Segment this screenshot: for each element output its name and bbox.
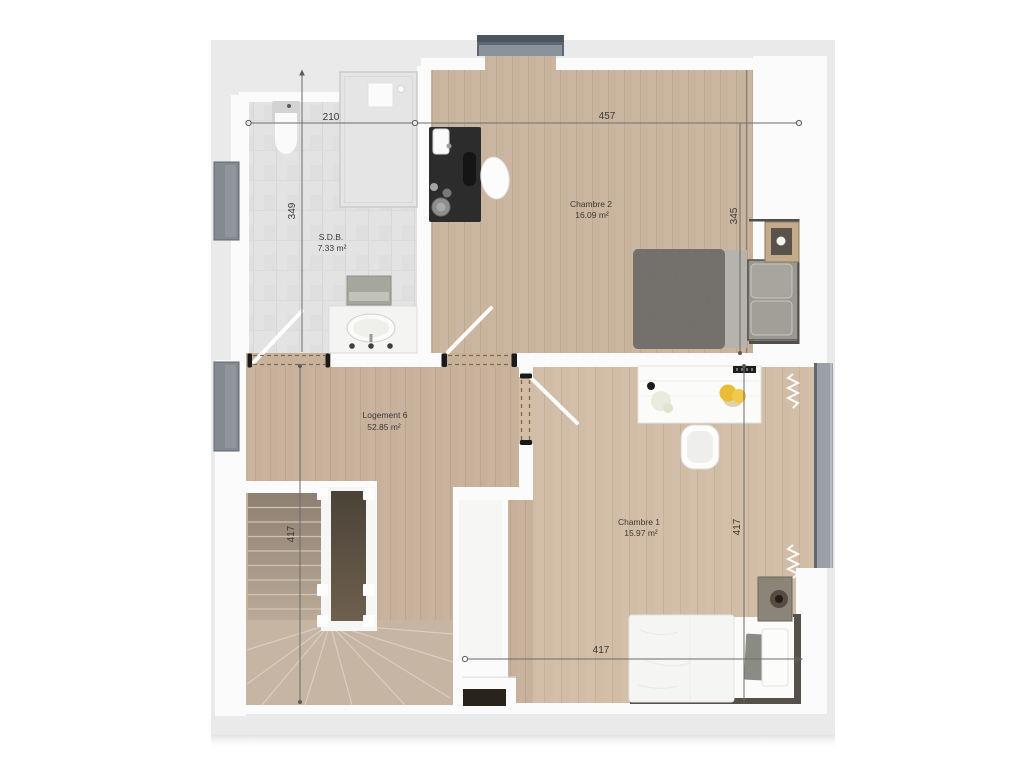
svg-text:52.85 m²: 52.85 m² <box>367 422 401 432</box>
svg-text:457: 457 <box>599 111 616 122</box>
svg-text:417: 417 <box>593 645 610 656</box>
svg-text:417: 417 <box>286 525 297 542</box>
svg-text:417: 417 <box>732 518 743 535</box>
svg-text:S.D.B.: S.D.B. <box>319 232 344 242</box>
svg-text:15.97 m²: 15.97 m² <box>624 528 658 538</box>
svg-text:7.33 m²: 7.33 m² <box>318 243 347 253</box>
svg-text:Chambre 2: Chambre 2 <box>570 199 612 209</box>
svg-text:345: 345 <box>729 207 740 224</box>
svg-text:Chambre 1: Chambre 1 <box>618 517 660 527</box>
svg-text:Logement 6: Logement 6 <box>363 410 408 420</box>
svg-text:16.09 m²: 16.09 m² <box>575 210 609 220</box>
svg-text:349: 349 <box>287 202 298 219</box>
svg-text:210: 210 <box>323 112 340 123</box>
